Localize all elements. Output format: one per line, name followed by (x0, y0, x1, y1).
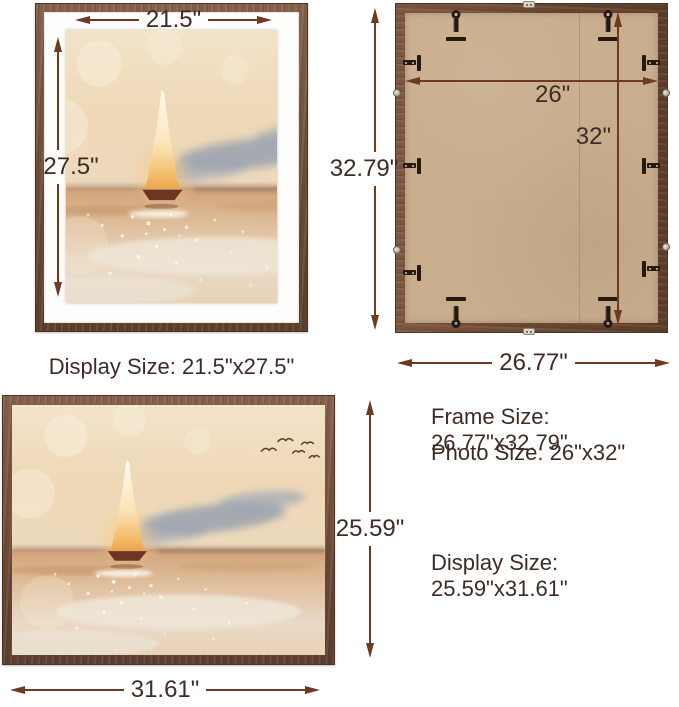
arrowhead-up-icon (366, 400, 374, 415)
spec-photo-size: Photo Size: 26"x32" (431, 440, 625, 466)
arrowhead-down-icon (371, 315, 379, 330)
dim-display-width-landscape: 31.61" (10, 680, 320, 700)
clip-pin (417, 158, 421, 174)
metal-bracket-icon (523, 328, 535, 335)
arrowhead-up-icon (614, 12, 622, 27)
arrowhead-right-icon (643, 77, 658, 85)
arrowhead-left-icon (405, 77, 420, 85)
dim-photo-height: 32" (605, 12, 631, 325)
screw-icon (393, 246, 401, 254)
clip-pin (642, 158, 646, 174)
arrowhead-left-icon (10, 686, 25, 694)
dim-line (369, 546, 371, 643)
arrowhead-up-icon (371, 8, 379, 23)
dim-line (412, 362, 492, 364)
board-seam (579, 13, 580, 323)
dim-display-height-landscape: 25.59" (357, 400, 383, 658)
clip-bar (403, 270, 416, 275)
d-ring-hanger-icon (446, 10, 466, 41)
dim-frame-width: 26.77" (397, 353, 670, 373)
dim-line (369, 415, 371, 512)
screw-icon (393, 89, 401, 97)
turn-button-clip-icon (641, 55, 660, 71)
dim-display-width-portrait: 21.5" (75, 10, 272, 30)
turn-button-clip-icon (403, 158, 422, 174)
dim-label-display-height: 27.5" (43, 150, 98, 184)
dim-line (617, 27, 619, 310)
clip-pin (417, 55, 421, 71)
clip-pin (417, 265, 421, 281)
dim-display-height-portrait: 27.5" (45, 37, 71, 297)
dim-line (206, 689, 305, 691)
metal-bracket-icon (523, 1, 535, 8)
spec-display-size: Display Size: 25.59"x31.61" (431, 550, 679, 602)
dim-frame-height: 32.79" (362, 8, 388, 330)
dim-label-display-height-landscape: 25.59" (336, 512, 405, 546)
product-dimension-diagram: 21.5" 27.5" Display Size: 21.5"x27.5" 32… (0, 0, 679, 707)
arrowhead-left-icon (75, 16, 90, 24)
turn-button-clip-icon (641, 261, 660, 277)
clip-pin (642, 55, 646, 71)
screw-icon (662, 243, 670, 251)
turn-button-clip-icon (403, 265, 422, 281)
dim-label-display-width: 21.5" (139, 8, 208, 32)
arrowhead-right-icon (655, 359, 670, 367)
dim-line (57, 52, 59, 150)
dim-line (374, 186, 376, 315)
clip-bar (403, 163, 416, 168)
sailboat-painting-landscape (12, 405, 325, 655)
arrowhead-down-icon (54, 282, 62, 297)
sawtooth-bar (446, 37, 466, 41)
dim-label-frame-width: 26.77" (492, 351, 575, 375)
dim-line (374, 23, 376, 152)
dim-label-display-width-landscape: 31.61" (124, 678, 207, 702)
strap (454, 306, 459, 321)
clip-bar (647, 60, 660, 65)
screw-icon (662, 89, 670, 97)
arrowhead-down-icon (366, 643, 374, 658)
landscape-frame-front (2, 395, 335, 665)
caption-display-size-portrait: Display Size: 21.5"x27.5" (33, 354, 310, 380)
dim-line (25, 689, 124, 691)
clip-bar (647, 266, 660, 271)
arrowhead-down-icon (614, 310, 622, 325)
sawtooth-bar (446, 297, 466, 301)
clip-bar (403, 60, 416, 65)
clip-bar (647, 163, 660, 168)
arrowhead-right-icon (305, 686, 320, 694)
dim-line (57, 184, 59, 282)
dim-label-photo-width: 26" (535, 83, 570, 107)
dim-label-photo-height: 32" (576, 125, 611, 149)
strap (454, 17, 459, 32)
dim-line (575, 362, 655, 364)
clip-pin (642, 261, 646, 277)
d-ring-hanger-icon (446, 297, 466, 328)
dim-label-frame-height: 32.79" (330, 152, 399, 186)
arrowhead-right-icon (257, 16, 272, 24)
arrowhead-left-icon (397, 359, 412, 367)
dim-line (90, 19, 139, 21)
arrowhead-up-icon (54, 37, 62, 52)
turn-button-clip-icon (641, 158, 660, 174)
turn-button-clip-icon (403, 55, 422, 71)
dim-line (208, 19, 257, 21)
